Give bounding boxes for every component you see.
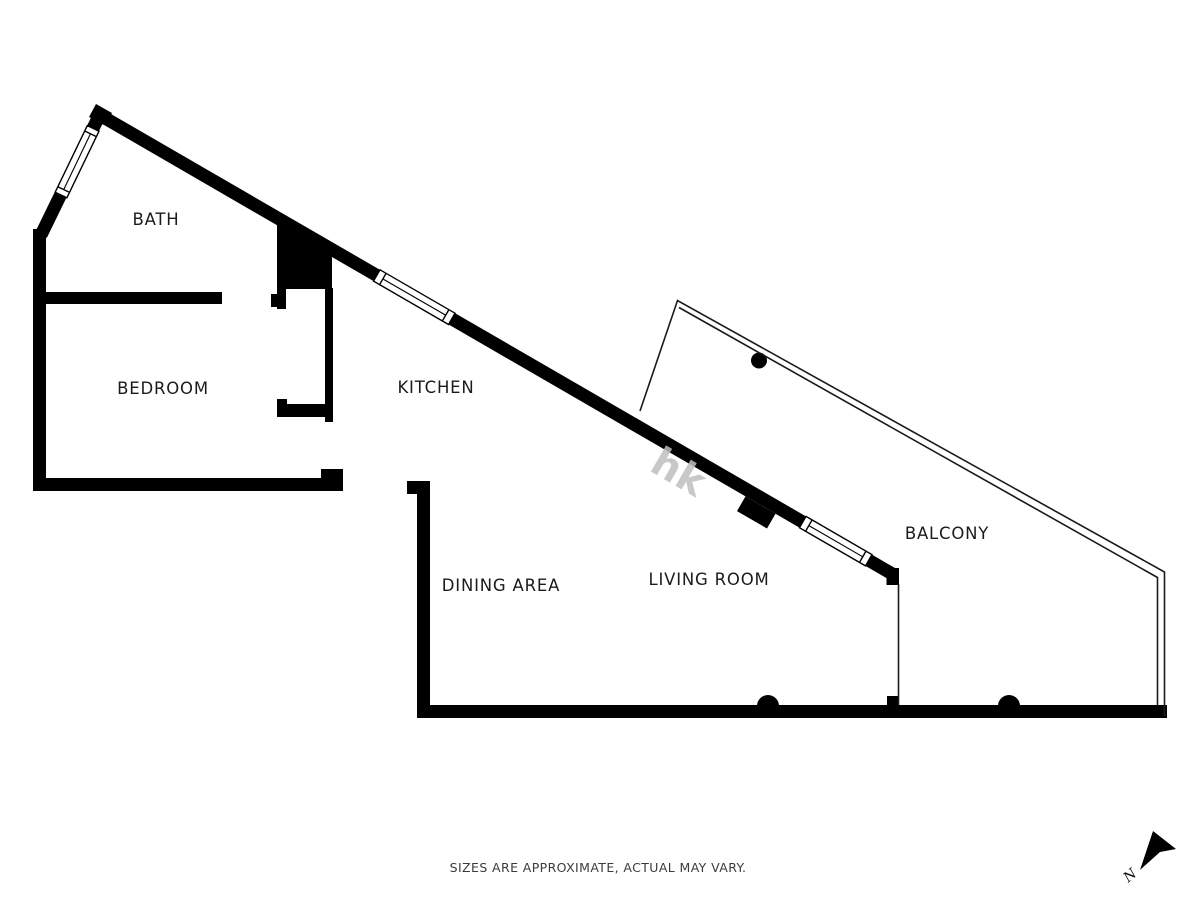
wall-living-balcony-elbow [887, 568, 900, 585]
balcony-divider-foot [887, 696, 898, 706]
closet-door-jamb [271, 294, 278, 307]
disclaimer-text: SIZES ARE APPROXIMATE, ACTUAL MAY VARY. [450, 860, 747, 875]
closet-wall-south [285, 404, 333, 417]
room-label-bath: BATH [132, 210, 179, 229]
closet-wall-east [325, 288, 333, 422]
room-label-kitchen: KITCHEN [397, 378, 474, 397]
wall-dining-west [417, 481, 430, 708]
room-label-living-room: LIVING ROOM [648, 570, 769, 589]
kitchen-pilaster [321, 469, 343, 480]
floor-plan-background [0, 0, 1200, 900]
room-label-bedroom: BEDROOM [117, 379, 209, 398]
wall-south [417, 705, 1167, 718]
floor-plan: BATH BEDROOM KITCHEN DINING AREA LIVING … [0, 0, 1200, 900]
room-label-balcony: BALCONY [905, 524, 989, 543]
room-label-dining-area: DINING AREA [442, 576, 560, 595]
closet-wall-west-top [277, 288, 286, 309]
